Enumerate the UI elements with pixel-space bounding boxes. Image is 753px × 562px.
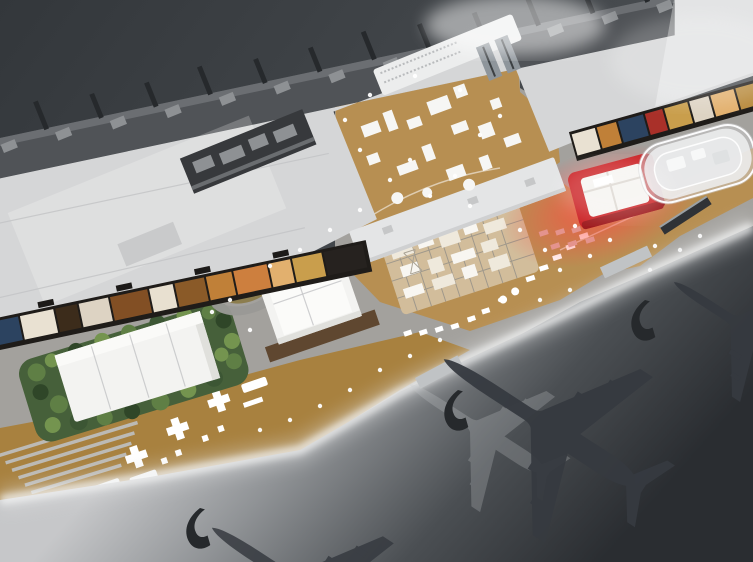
render-canvas	[0, 0, 753, 562]
airport-terminal-render	[0, 0, 753, 562]
